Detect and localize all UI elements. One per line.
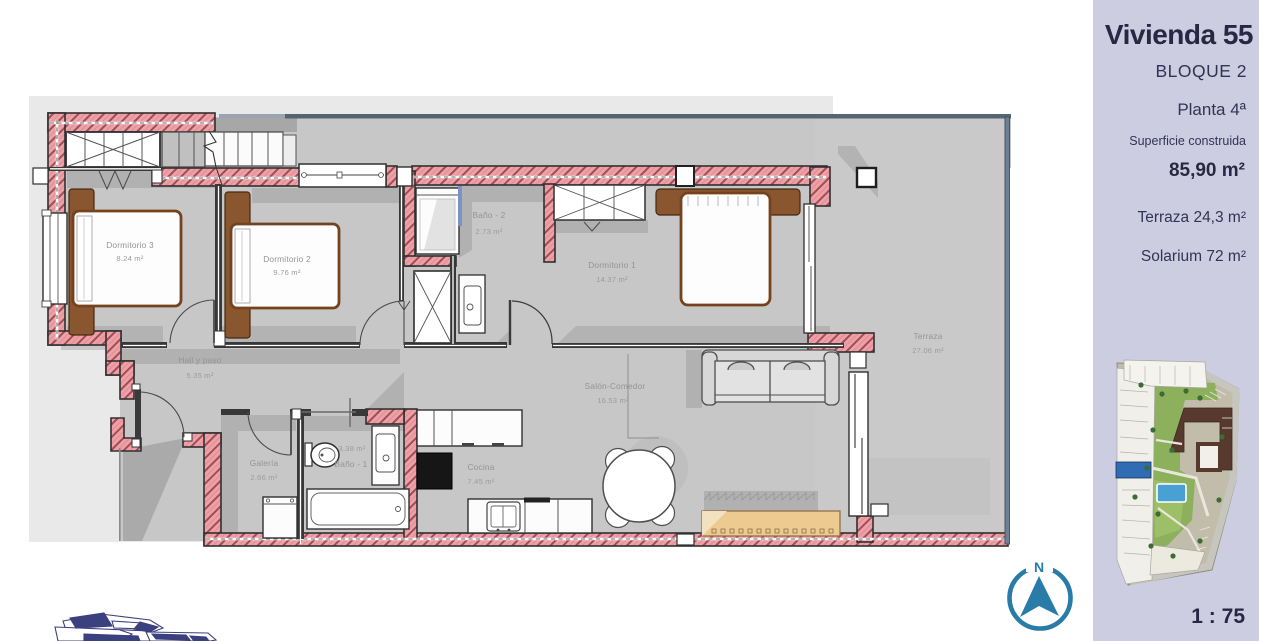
svg-text:Solarium 72 m²: Solarium 72 m² (1141, 248, 1246, 265)
svg-text:16.53 m²: 16.53 m² (597, 396, 629, 405)
svg-text:BLOQUE 2: BLOQUE 2 (1155, 61, 1247, 81)
svg-text:1 : 75: 1 : 75 (1191, 605, 1245, 628)
svg-text:Vivienda 55: Vivienda 55 (1105, 19, 1253, 50)
svg-text:2.66 m²: 2.66 m² (250, 473, 277, 482)
svg-text:Baño - 1: Baño - 1 (335, 459, 368, 469)
svg-text:Hall y paso: Hall y paso (178, 355, 221, 365)
svg-text:Terraza: Terraza (913, 331, 942, 341)
svg-text:Terraza 24,3 m²: Terraza 24,3 m² (1137, 209, 1246, 226)
svg-text:Superficie construida: Superficie construida (1129, 134, 1246, 148)
svg-text:Dormitorio 2: Dormitorio 2 (263, 254, 311, 264)
svg-text:9.76 m²: 9.76 m² (273, 268, 300, 277)
svg-text:85,90 m²: 85,90 m² (1169, 160, 1245, 181)
svg-text:Cocina: Cocina (467, 462, 494, 472)
svg-text:Baño - 2: Baño - 2 (473, 210, 506, 220)
svg-text:N: N (1034, 559, 1044, 575)
svg-text:Dormitorio 1: Dormitorio 1 (588, 260, 636, 270)
svg-text:27.06 m²: 27.06 m² (912, 346, 944, 355)
svg-text:Salón-Comedor: Salón-Comedor (585, 381, 646, 391)
svg-text:8.24 m²: 8.24 m² (116, 254, 143, 263)
svg-text:Galería: Galería (250, 458, 279, 468)
svg-text:Planta 4ª: Planta 4ª (1177, 100, 1246, 119)
svg-text:Dormitorio 3: Dormitorio 3 (106, 240, 154, 250)
svg-text:7.45 m²: 7.45 m² (467, 477, 494, 486)
svg-text:3.38 m²: 3.38 m² (338, 444, 365, 453)
svg-text:2.73 m²: 2.73 m² (475, 227, 502, 236)
svg-text:14.37 m²: 14.37 m² (596, 275, 628, 284)
svg-text:5.35 m²: 5.35 m² (186, 371, 213, 380)
